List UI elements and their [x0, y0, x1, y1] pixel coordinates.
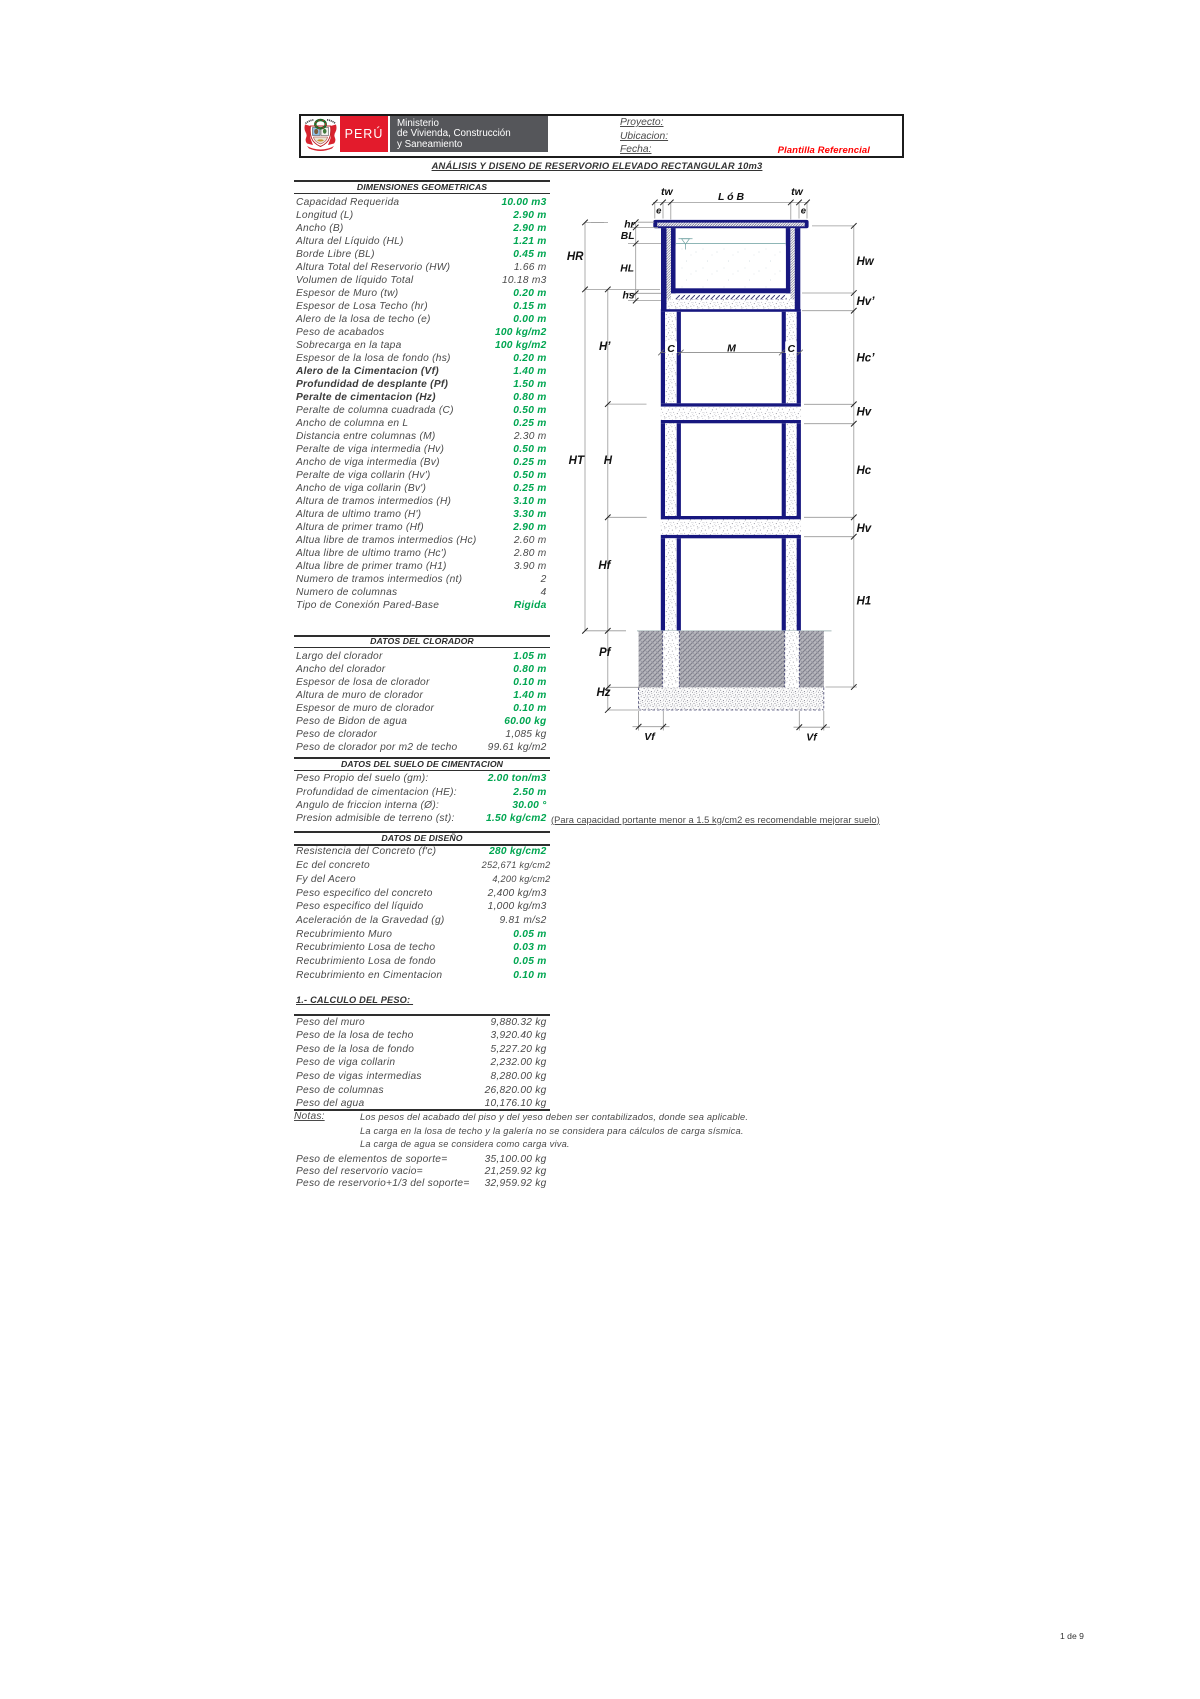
svg-text:Hv: Hv [857, 523, 872, 535]
svg-text:Vf: Vf [806, 732, 818, 744]
svg-text:Hf: Hf [598, 560, 611, 572]
svg-text:HL: HL [620, 264, 634, 275]
svg-text:Hc: Hc [857, 465, 872, 477]
svg-text:Hv’: Hv’ [857, 296, 876, 308]
svg-text:H: H [604, 455, 613, 467]
svg-text:e: e [656, 206, 662, 217]
svg-text:tw: tw [791, 186, 803, 198]
svg-text:BL: BL [621, 231, 635, 242]
svg-text:M: M [727, 343, 736, 355]
svg-text:L ó B: L ó B [718, 191, 744, 203]
svg-text:C: C [788, 343, 796, 355]
svg-text:Hz: Hz [596, 687, 610, 699]
svg-text:Pf: Pf [599, 647, 612, 659]
svg-text:e: e [801, 206, 807, 217]
svg-text:Hw: Hw [857, 256, 875, 268]
svg-text:Vf: Vf [644, 731, 656, 743]
svg-text:hs: hs [622, 291, 634, 302]
svg-text:H’: H’ [599, 341, 611, 353]
svg-text:HR: HR [567, 251, 584, 263]
svg-text:Hc’: Hc’ [857, 353, 876, 365]
svg-text:H1: H1 [857, 596, 872, 608]
svg-text:hr: hr [624, 220, 635, 231]
svg-text:C: C [667, 343, 675, 355]
svg-text:tw: tw [661, 186, 673, 198]
svg-text:Hv: Hv [857, 407, 872, 419]
svg-text:HT: HT [569, 455, 585, 467]
